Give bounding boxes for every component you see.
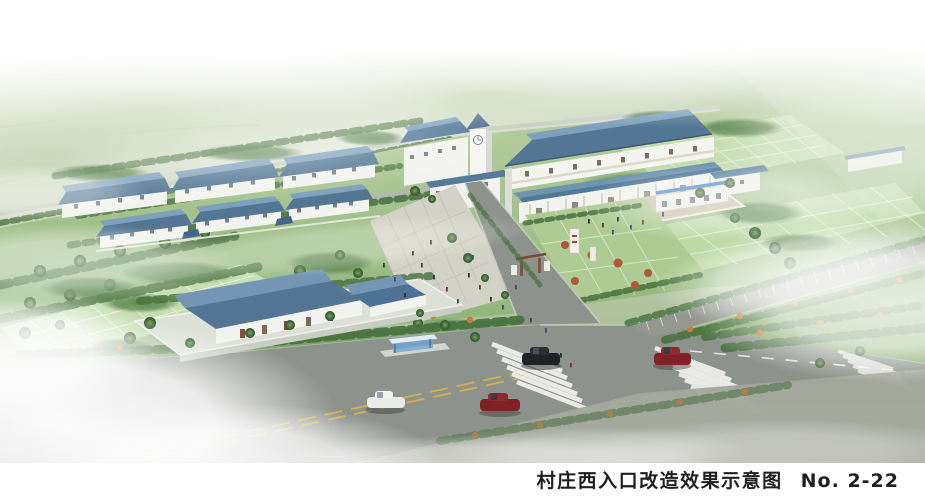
caption-figure-number: No. 2-22 [801, 470, 899, 492]
rendering-page: 村庄西入口改造效果示意图No. 2-22 [0, 0, 925, 500]
caption-title: 村庄西入口改造效果示意图 [537, 470, 783, 492]
caption: 村庄西入口改造效果示意图No. 2-22 [537, 466, 899, 493]
aerial-rendering [0, 33, 925, 463]
